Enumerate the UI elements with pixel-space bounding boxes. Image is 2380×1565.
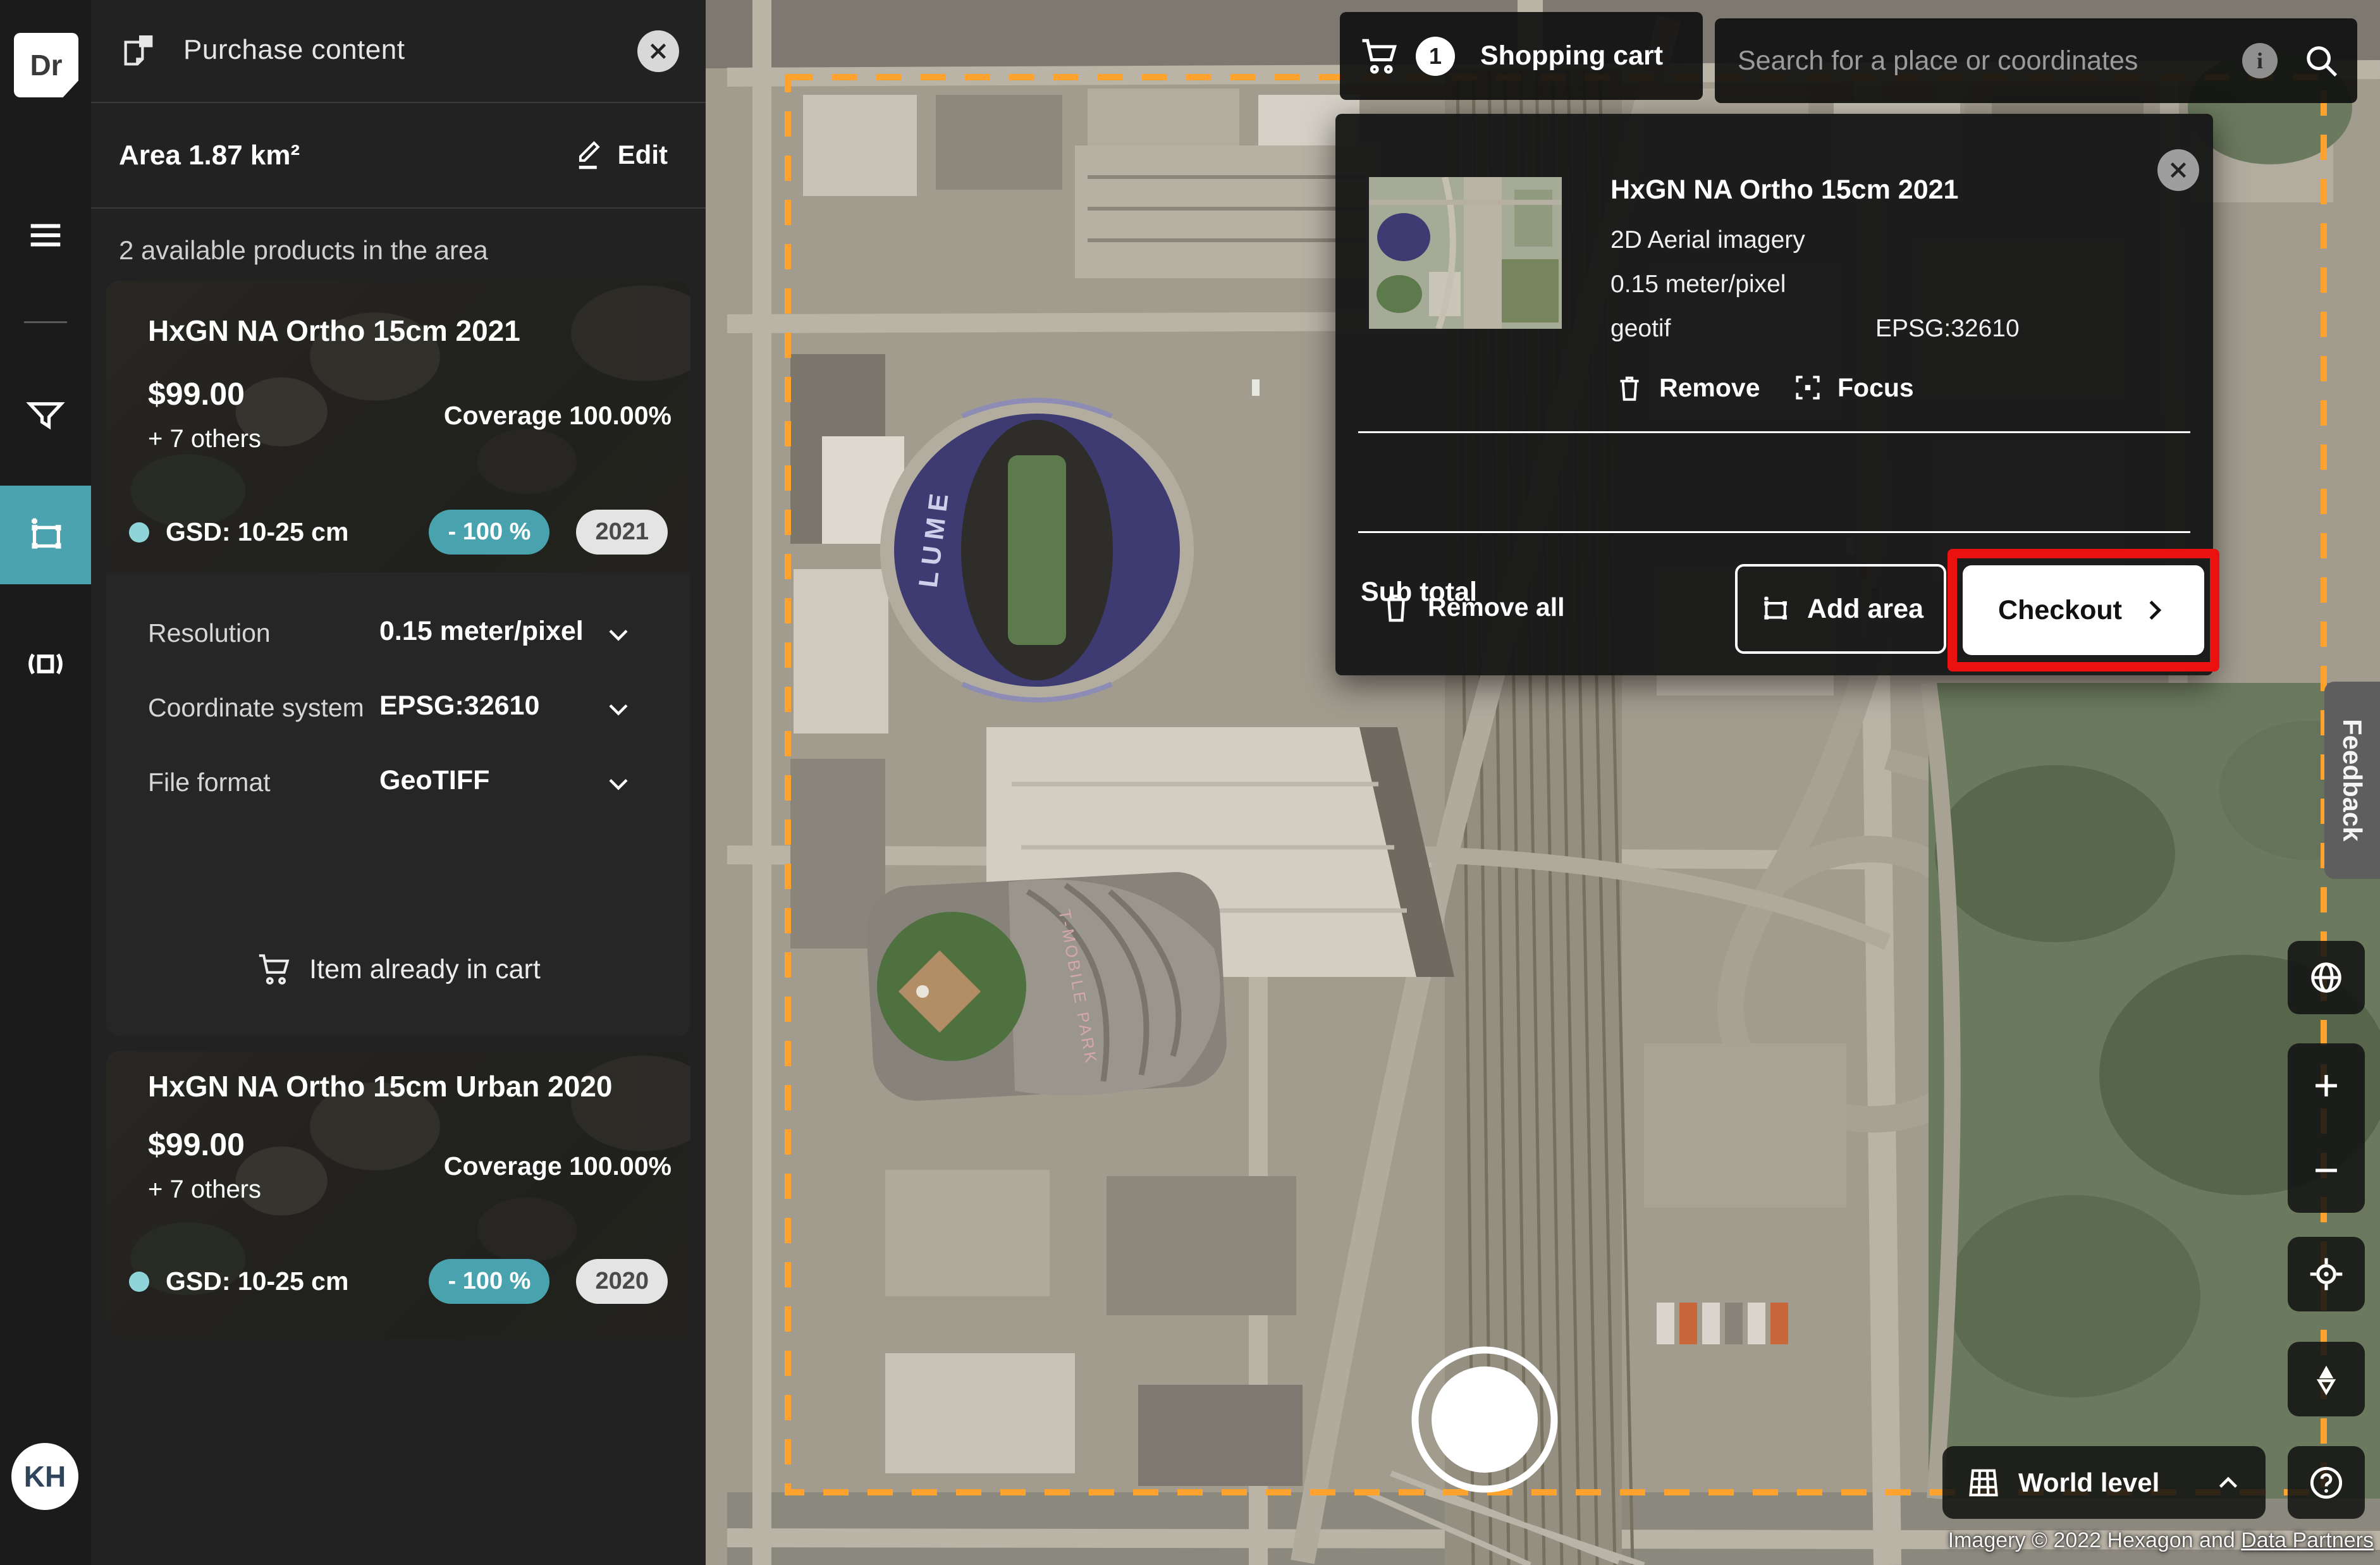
search-icon[interactable] [2302,41,2341,80]
discount-badge: - 100 % [429,510,549,555]
world-level-button[interactable]: World level [1942,1446,2266,1519]
focus-icon [1792,372,1824,403]
year-badge: 2020 [576,1259,668,1304]
product-card-2021[interactable]: HxGN NA Ortho 15cm 2021 $99.00 + 7 other… [106,281,690,1036]
purchase-content-icon [119,30,159,71]
remove-all-label: Remove all [1428,592,1565,622]
discount-badge: - 100 % [429,1259,549,1304]
rail-divider [24,321,67,323]
add-area-icon [1758,592,1792,626]
grid-icon [1965,1464,2002,1501]
feedback-label: Feedback [2337,719,2367,842]
panel-title: Purchase content [183,34,405,66]
world-level-label: World level [2018,1468,2159,1498]
trash-icon [1378,589,1414,625]
map-attribution: Imagery © 2022 Hexagon and Data Partners [1948,1528,2374,1553]
popup-close-button[interactable] [2157,149,2199,191]
cart-icon [256,951,293,988]
search-bar: i [1715,18,2357,103]
cart-icon [1359,35,1401,77]
add-area-button[interactable]: Add area [1735,564,1946,654]
checkout-highlight-annotation: Checkout [1948,549,2219,672]
coordinate-system-row: Coordinate system EPSG:32610 [106,678,690,739]
zoom-out-button[interactable] [2308,1152,2345,1189]
trash-icon [1614,372,1645,403]
coordinate-system-label: Coordinate system [148,693,364,723]
chevron-down-icon[interactable] [602,618,635,651]
product-others: + 7 others [148,425,261,453]
gsd-label: GSD: 10-25 cm [166,517,348,547]
resolution-label: Resolution [148,618,271,648]
hamburger-icon [23,213,68,257]
file-format-label: File format [148,768,271,797]
cart-item-format: geotif [1610,315,1671,343]
area-marker[interactable] [1415,1350,1554,1489]
focus-item-button[interactable]: Focus [1792,372,1914,403]
locate-me-button[interactable] [2288,1237,2365,1311]
filter-funnel-icon [25,395,66,437]
remove-item-label: Remove [1659,373,1760,403]
shopping-cart-button[interactable]: 1 Shopping cart [1340,12,1703,100]
popup-divider [1358,431,2190,433]
checkout-button[interactable]: Checkout [1963,565,2204,655]
cart-item-resolution: 0.15 meter/pixel [1610,271,1786,298]
question-icon [2306,1463,2346,1503]
info-icon[interactable]: i [2242,43,2278,78]
select-area-tool-button[interactable] [0,486,91,584]
panel-header: Purchase content [91,0,706,103]
menu-button[interactable] [0,197,91,273]
cart-item-type: 2D Aerial imagery [1610,226,1805,254]
product-card-2021-hero: HxGN NA Ortho 15cm 2021 $99.00 + 7 other… [106,281,690,572]
purchase-content-panel: Purchase content Area 1.87 km² Edit 2 av… [91,0,706,1565]
edit-area-button[interactable]: Edit [574,135,668,170]
product-price: $99.00 [148,376,245,412]
select-area-icon [23,513,68,557]
gsd-dot-icon [129,1272,149,1292]
resolution-value: 0.15 meter/pixel [379,616,584,647]
zoom-control [2288,1043,2365,1213]
product-gsd-row: GSD: 10-25 cm - 100 % 2020 [129,1259,668,1304]
chevron-down-icon[interactable] [602,768,635,801]
focus-item-label: Focus [1837,373,1914,403]
globe-view-button[interactable] [2288,941,2365,1014]
product-card-2020-hero: HxGN NA Ortho 15cm Urban 2020 $99.00 + 7… [106,1052,690,1339]
app-logo[interactable]: Dr [14,33,78,97]
map-lumen-field: LUME [880,400,1194,701]
search-input[interactable] [1715,46,2242,77]
compare-icon [23,641,68,687]
remove-all-button[interactable]: Remove all [1378,589,1565,625]
product-title: HxGN NA Ortho 15cm Urban 2020 [148,1069,613,1103]
products-count-heading: 2 available products in the area [119,235,488,266]
compass-button[interactable] [2288,1342,2365,1416]
feedback-tab[interactable]: Feedback [2324,682,2380,879]
cart-count-badge: 1 [1416,37,1455,76]
edit-label: Edit [618,140,668,170]
crosshair-icon [2306,1254,2346,1294]
resolution-row: Resolution 0.15 meter/pixel [106,603,690,664]
file-format-row: File format GeoTIFF [106,752,690,813]
product-price: $99.00 [148,1126,245,1163]
gsd-dot-icon [129,522,149,543]
chevron-right-icon [2140,596,2169,625]
product-title: HxGN NA Ortho 15cm 2021 [148,314,520,348]
coordinate-system-value: EPSG:32610 [379,690,539,721]
chevron-down-icon[interactable] [602,693,635,726]
panel-close-button[interactable] [637,30,679,72]
globe-icon [2306,957,2346,998]
cart-button-label: Shopping cart [1480,40,1663,71]
product-gsd-row: GSD: 10-25 cm - 100 % 2021 [129,510,668,555]
chevron-up-icon [2212,1467,2244,1499]
cart-item-thumbnail [1369,177,1562,329]
shopping-cart-popup: HxGN NA Ortho 15cm 2021 2D Aerial imager… [1335,114,2213,675]
map-tmobile-park: T-MOBILE PARK [864,870,1229,1103]
cart-item-title: HxGN NA Ortho 15cm 2021 [1610,175,1958,206]
attribution-data-partners-link[interactable]: Data Partners [2241,1528,2374,1552]
user-avatar[interactable]: KH [11,1443,78,1510]
product-coverage: Coverage 100.00% [444,1151,672,1181]
year-badge: 2021 [576,510,668,555]
compass-icon [2307,1360,2345,1398]
help-button[interactable] [2288,1446,2365,1519]
product-card-2020[interactable]: HxGN NA Ortho 15cm Urban 2020 $99.00 + 7… [106,1052,690,1339]
item-in-cart-label: Item already in cart [309,954,541,985]
product-coverage: Coverage 100.00% [444,401,672,431]
area-row: Area 1.87 km² Edit [91,103,706,209]
gsd-label: GSD: 10-25 cm [166,1267,348,1296]
item-in-cart-status: Item already in cart [106,951,690,988]
compare-swipe-button[interactable] [0,626,91,702]
popup-divider [1358,531,2190,533]
filter-button[interactable] [0,378,91,454]
cart-item-epsg: EPSG:32610 [1875,315,2020,343]
product-others: + 7 others [148,1175,261,1204]
checkout-label: Checkout [1998,595,2122,626]
pencil-icon [574,135,606,170]
file-format-value: GeoTIFF [379,765,489,796]
remove-item-button[interactable]: Remove [1614,372,1760,403]
attribution-text: Imagery © 2022 Hexagon and [1948,1528,2242,1552]
zoom-in-button[interactable] [2308,1067,2345,1104]
left-icon-rail: Dr [0,0,91,1565]
area-size-label: Area 1.87 km² [119,140,300,171]
add-area-label: Add area [1807,594,1923,625]
